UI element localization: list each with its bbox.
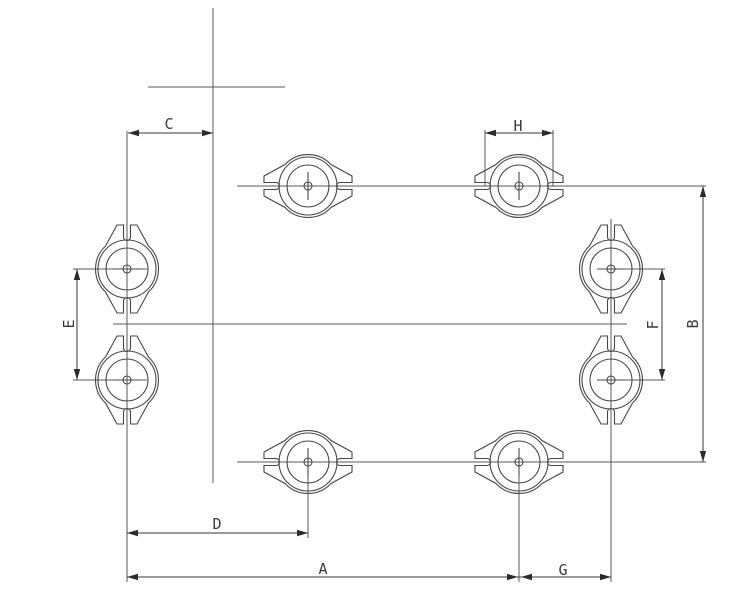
arrow-g-left: [521, 574, 532, 580]
dim-label-c: C: [164, 115, 173, 133]
dim-label-f: F: [644, 320, 662, 329]
arrow-d-right: [297, 530, 308, 536]
dim-label-a: A: [318, 560, 327, 578]
arrow-e-top: [74, 269, 80, 280]
arrow-f-top: [659, 269, 665, 280]
arrow-f-bottom: [659, 369, 665, 380]
arrow-b-top: [700, 186, 706, 197]
arrow-a-right: [507, 574, 518, 580]
dim-label-d: D: [212, 515, 221, 533]
dim-label-e: E: [60, 319, 78, 328]
dim-label-b: B: [684, 319, 702, 328]
arrow-a-left: [127, 574, 138, 580]
arrow-g-right: [600, 574, 611, 580]
dimension-drawing: C H D A G E F B: [0, 0, 750, 610]
dim-label-h: H: [513, 117, 522, 135]
arrow-d-left: [127, 530, 138, 536]
cad-drawing-canvas: C H D A G E F B: [0, 0, 750, 610]
arrow-c-right: [202, 130, 213, 136]
arrow-h-right: [542, 130, 553, 136]
dim-label-g: G: [558, 561, 567, 579]
arrow-b-bottom: [700, 451, 706, 462]
arrow-c-left: [128, 130, 139, 136]
arrow-h-left: [485, 130, 496, 136]
arrow-e-bottom: [74, 369, 80, 380]
